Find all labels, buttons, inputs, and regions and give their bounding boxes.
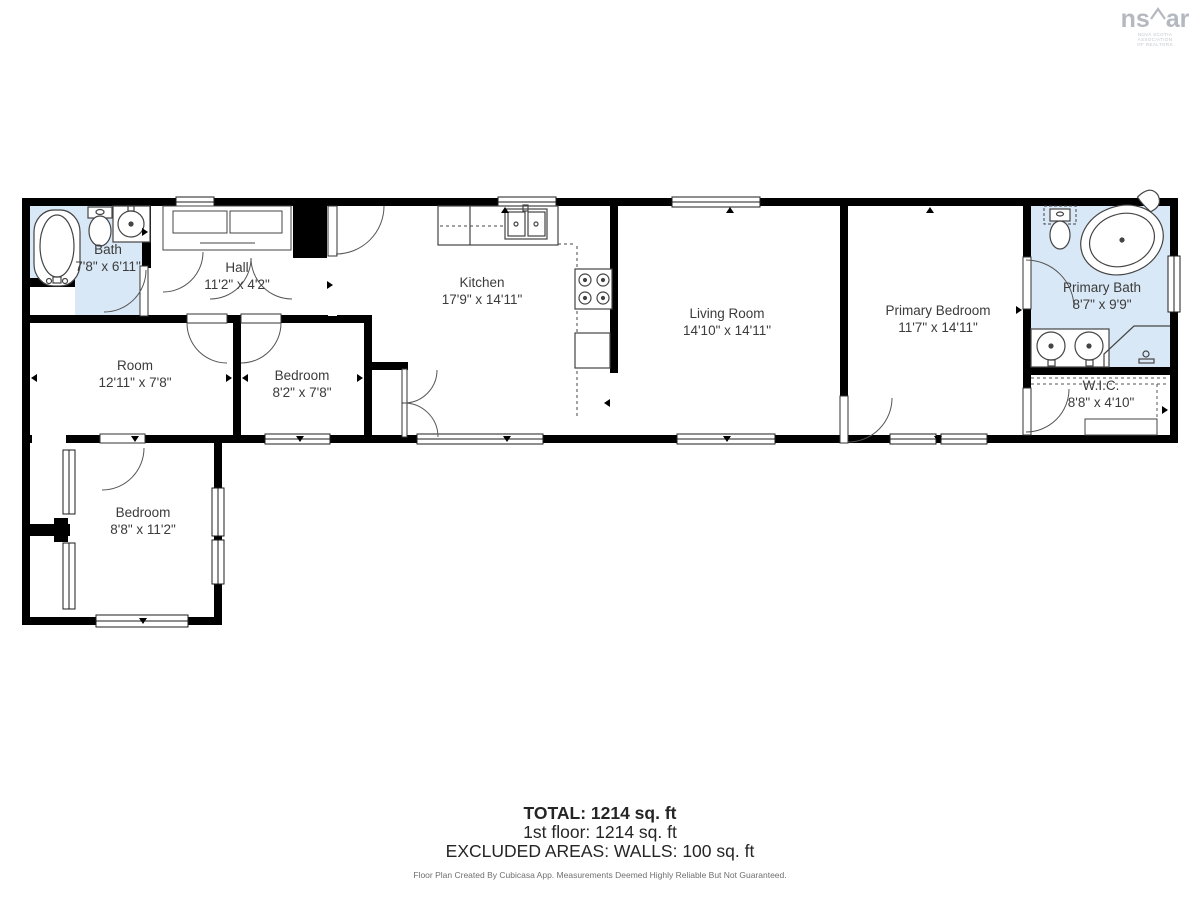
floorplan-page: Bath 7'8" x 6'11" Hall 11'2" x 4'2" Kitc…	[0, 0, 1200, 900]
hall-closet	[163, 206, 291, 250]
room-dims: 7'8" x 6'11"	[75, 258, 141, 275]
room-dims: 11'2" x 4'2"	[204, 276, 270, 293]
window	[63, 543, 75, 609]
logo-text-right: ar	[1166, 5, 1190, 33]
room-name: Living Room	[683, 305, 771, 322]
primary-bath-door-leaf	[1023, 257, 1031, 309]
hall-west-door-arc	[163, 252, 203, 292]
window	[672, 197, 760, 207]
room-name: Bath	[75, 241, 141, 258]
wic-door-leaf	[1023, 388, 1031, 435]
room-dims: 8'8" x 11'2"	[110, 521, 176, 538]
room-name: Kitchen	[442, 274, 523, 291]
room-label-living-room: Living Room 14'10" x 14'11"	[683, 305, 771, 339]
floorplan-drawing	[0, 0, 1200, 900]
hall-kitchen-door-arc	[336, 206, 384, 254]
room-dims: 8'8" x 4'10"	[1068, 394, 1135, 411]
window	[417, 434, 543, 444]
bedroom-door-arc	[241, 323, 281, 363]
room-name: Primary Bath	[1063, 279, 1141, 296]
room-label-room: Room 12'11" x 7'8"	[98, 357, 171, 391]
room-label-wic: W.I.C. 8'8" x 4'10"	[1068, 377, 1135, 411]
area-summary: TOTAL: 1214 sq. ft 1st floor: 1214 sq. f…	[0, 804, 1200, 880]
room-dims: 8'7" x 9'9"	[1063, 296, 1141, 313]
bifold-door-arc	[404, 403, 438, 437]
room-label-hall: Hall 11'2" x 4'2"	[204, 259, 270, 293]
window	[890, 434, 936, 444]
room-name: W.I.C.	[1068, 377, 1135, 394]
room-name: Bedroom	[110, 504, 176, 521]
room-dims: 12'11" x 7'8"	[98, 374, 171, 391]
window	[1168, 256, 1180, 312]
window	[212, 540, 224, 584]
kitchen-fixtures	[438, 205, 612, 416]
bifold-door-arc	[404, 370, 437, 403]
room-label-kitchen: Kitchen 17'9" x 14'11"	[442, 274, 523, 308]
bathtub	[34, 210, 80, 286]
window	[265, 434, 330, 444]
kitchen-cabinet	[575, 333, 610, 368]
room-label-bedroom-small: Bedroom 8'2" x 7'8"	[272, 367, 331, 401]
excluded-areas: EXCLUDED AREAS: WALLS: 100 sq. ft	[0, 842, 1200, 861]
wic-door-arc	[1026, 389, 1069, 432]
nsar-logo-subtext1: NOVA SCOTIA ASSOCIATION	[1120, 32, 1190, 42]
room-dims: 17'9" x 14'11"	[442, 291, 523, 308]
bedroom-door-leaf	[241, 314, 281, 323]
kitchen-sink	[505, 205, 547, 239]
first-floor-area: 1st floor: 1214 sq. ft	[0, 823, 1200, 842]
room-dims: 8'2" x 7'8"	[272, 384, 331, 401]
nsar-logo-mark: nsar	[1120, 6, 1190, 32]
hall-kitchen-door-leaf	[328, 206, 337, 256]
room-label-bath: Bath 7'8" x 6'11"	[75, 241, 141, 275]
stove	[575, 269, 612, 309]
logo-text-left: ns	[1121, 5, 1150, 33]
nsar-logo-subtext2: OF REALTORS	[1120, 42, 1190, 47]
lower-bedroom-door-leaf	[100, 434, 145, 443]
room-dims: 11'7" x 14'11"	[885, 319, 990, 336]
bifold-door-leaf	[402, 403, 407, 437]
roof-icon	[1150, 7, 1166, 21]
room-name: Hall	[204, 259, 270, 276]
window	[63, 450, 75, 514]
lower-bedroom-door-arc	[102, 448, 144, 490]
room-name: Room	[98, 357, 171, 374]
bifold-door-leaf	[402, 369, 407, 403]
walls	[22, 198, 1178, 625]
total-area: TOTAL: 1214 sq. ft	[0, 804, 1200, 823]
room-label-bedroom-lower: Bedroom 8'8" x 11'2"	[110, 504, 176, 538]
room-door-leaf	[187, 314, 227, 323]
room-label-primary-bedroom: Primary Bedroom 11'7" x 14'11"	[885, 302, 990, 336]
room-name: Primary Bedroom	[885, 302, 990, 319]
primary-vanity	[1031, 329, 1109, 367]
primary-bedroom-door-leaf	[840, 396, 848, 443]
window	[941, 434, 987, 444]
room-dims: 14'10" x 14'11"	[683, 322, 771, 339]
sink	[113, 206, 150, 242]
room-name: Bedroom	[272, 367, 331, 384]
nsar-logo: nsar NOVA SCOTIA ASSOCIATION OF REALTORS	[1120, 6, 1190, 47]
room-door-arc	[187, 323, 227, 363]
disclaimer: Floor Plan Created By Cubicasa App. Meas…	[0, 870, 1200, 880]
window	[212, 488, 224, 536]
room-label-primary-bath: Primary Bath 8'7" x 9'9"	[1063, 279, 1141, 313]
